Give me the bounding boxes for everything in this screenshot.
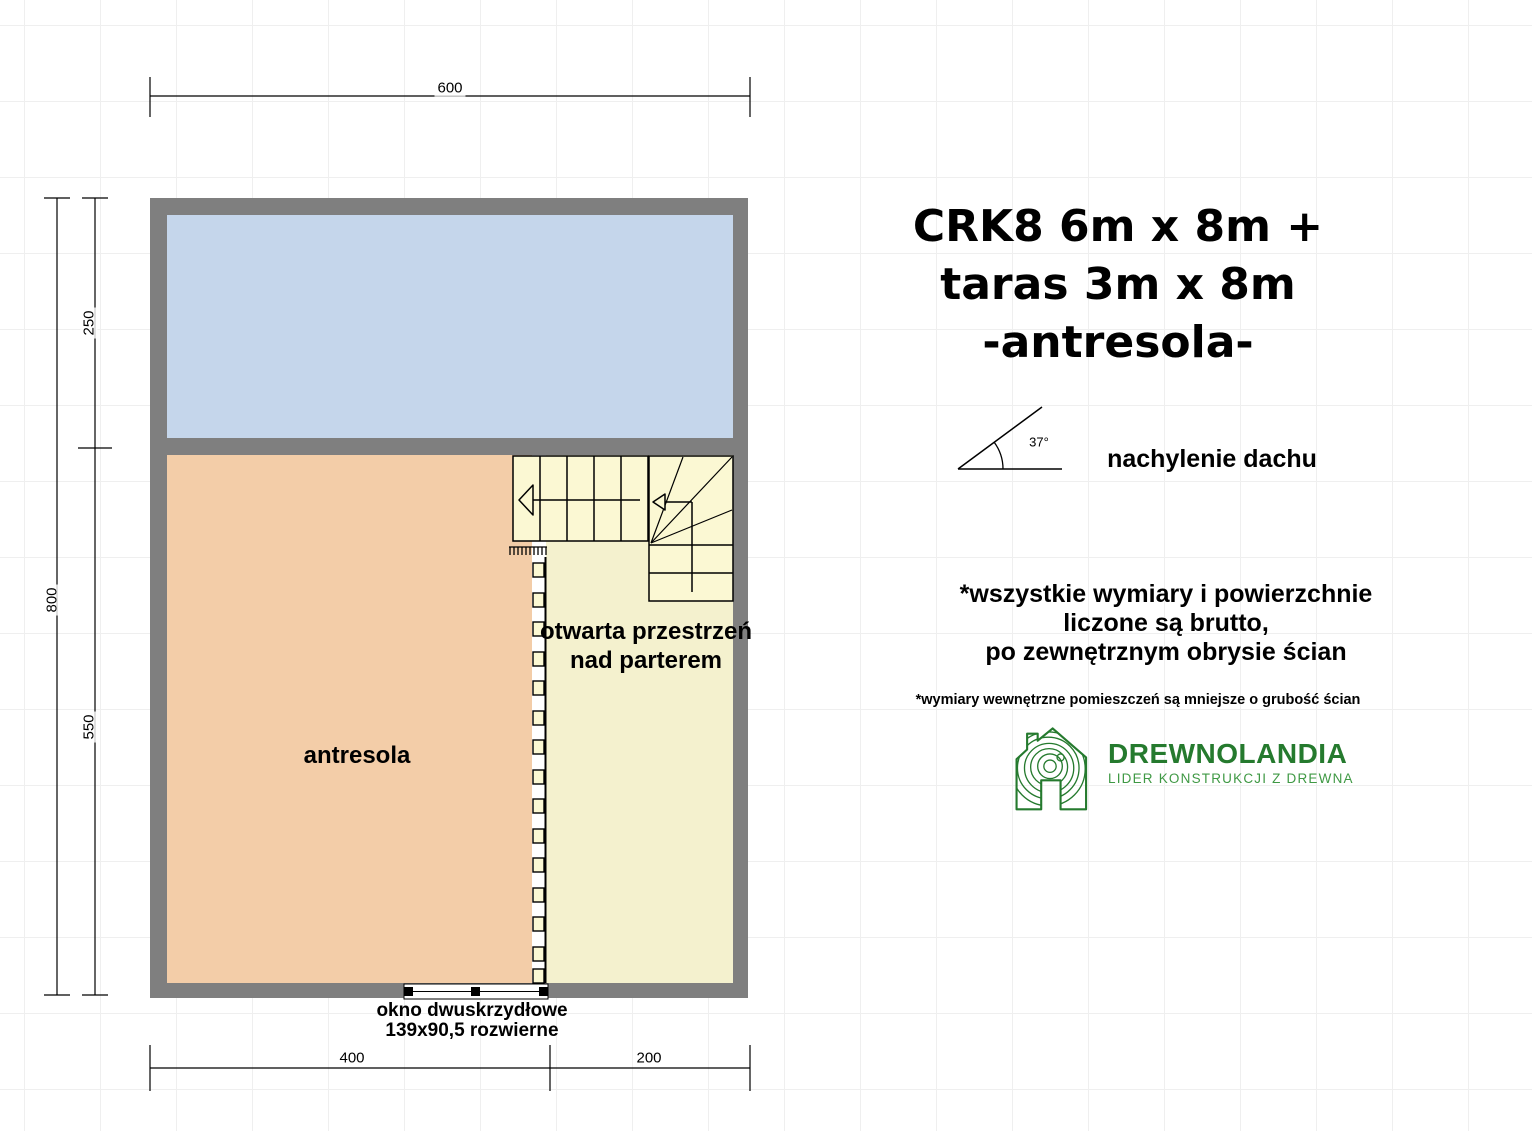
dimensions-note-line3: po zewnętrznym obrysie ścian [960,638,1373,667]
roof-pitch-label: nachylenie dachu [1107,445,1317,474]
floor-plan-sheet: 600 800 250 550 400 200 antresola otwart… [0,0,1532,1131]
dimensions-note-line2: liczone są brutto, [960,609,1373,638]
dimensions-note: *wszystkie wymiary i powierzchnie liczon… [960,580,1373,667]
house-wood-rings-icon [1006,724,1094,812]
logo-tagline: LIDER KONSTRUKCJI Z DREWNA [1108,771,1354,786]
drawing-title-line2: taras 3m x 8m [913,256,1323,314]
dimension-left-upper: 250 [81,307,98,338]
dimension-left-lower: 550 [81,711,98,742]
room-label-antresola: antresola [304,742,411,770]
interior-dimensions-note: *wymiary wewnętrzne pomieszczeń są mniej… [916,692,1361,708]
floor-plan-drawing [0,0,1532,1131]
dimension-bottom-right: 200 [633,1050,664,1067]
logo-wordmark: DREWNOLANDIA [1108,738,1354,770]
open-space-label-line2: nad parterem [540,646,752,675]
window-label: okno dwuskrzydłowe 139x90,5 rozwierne [376,1001,567,1041]
terrace-area [167,215,733,438]
stairs-winder [649,456,733,601]
company-logo: DREWNOLANDIA LIDER KONSTRUKCJI Z DREWNA [1006,724,1354,812]
open-space-label: otwarta przestrzeń nad parterem [540,617,752,675]
drawing-title-line3: -antresola- [913,314,1323,372]
dimension-top-width: 600 [434,80,465,97]
window-label-line1: okno dwuskrzydłowe [376,1001,567,1021]
antresola-area [167,455,532,983]
drawing-title: CRK8 6m x 8m + taras 3m x 8m -antresola- [913,198,1323,372]
drawing-title-line1: CRK8 6m x 8m + [913,198,1323,256]
stairs-straight-run [513,456,648,541]
dimension-bottom-left: 400 [336,1050,367,1067]
window-label-line2: 139x90,5 rozwierne [376,1021,567,1041]
dimension-left-total: 800 [44,584,61,615]
dimensions-note-line1: *wszystkie wymiary i powierzchnie [960,580,1373,609]
roof-pitch-angle-value: 37° [1029,435,1049,450]
roof-pitch-angle-icon [940,393,1080,478]
open-space-label-line1: otwarta przestrzeń [540,617,752,646]
window-symbol [404,984,548,999]
